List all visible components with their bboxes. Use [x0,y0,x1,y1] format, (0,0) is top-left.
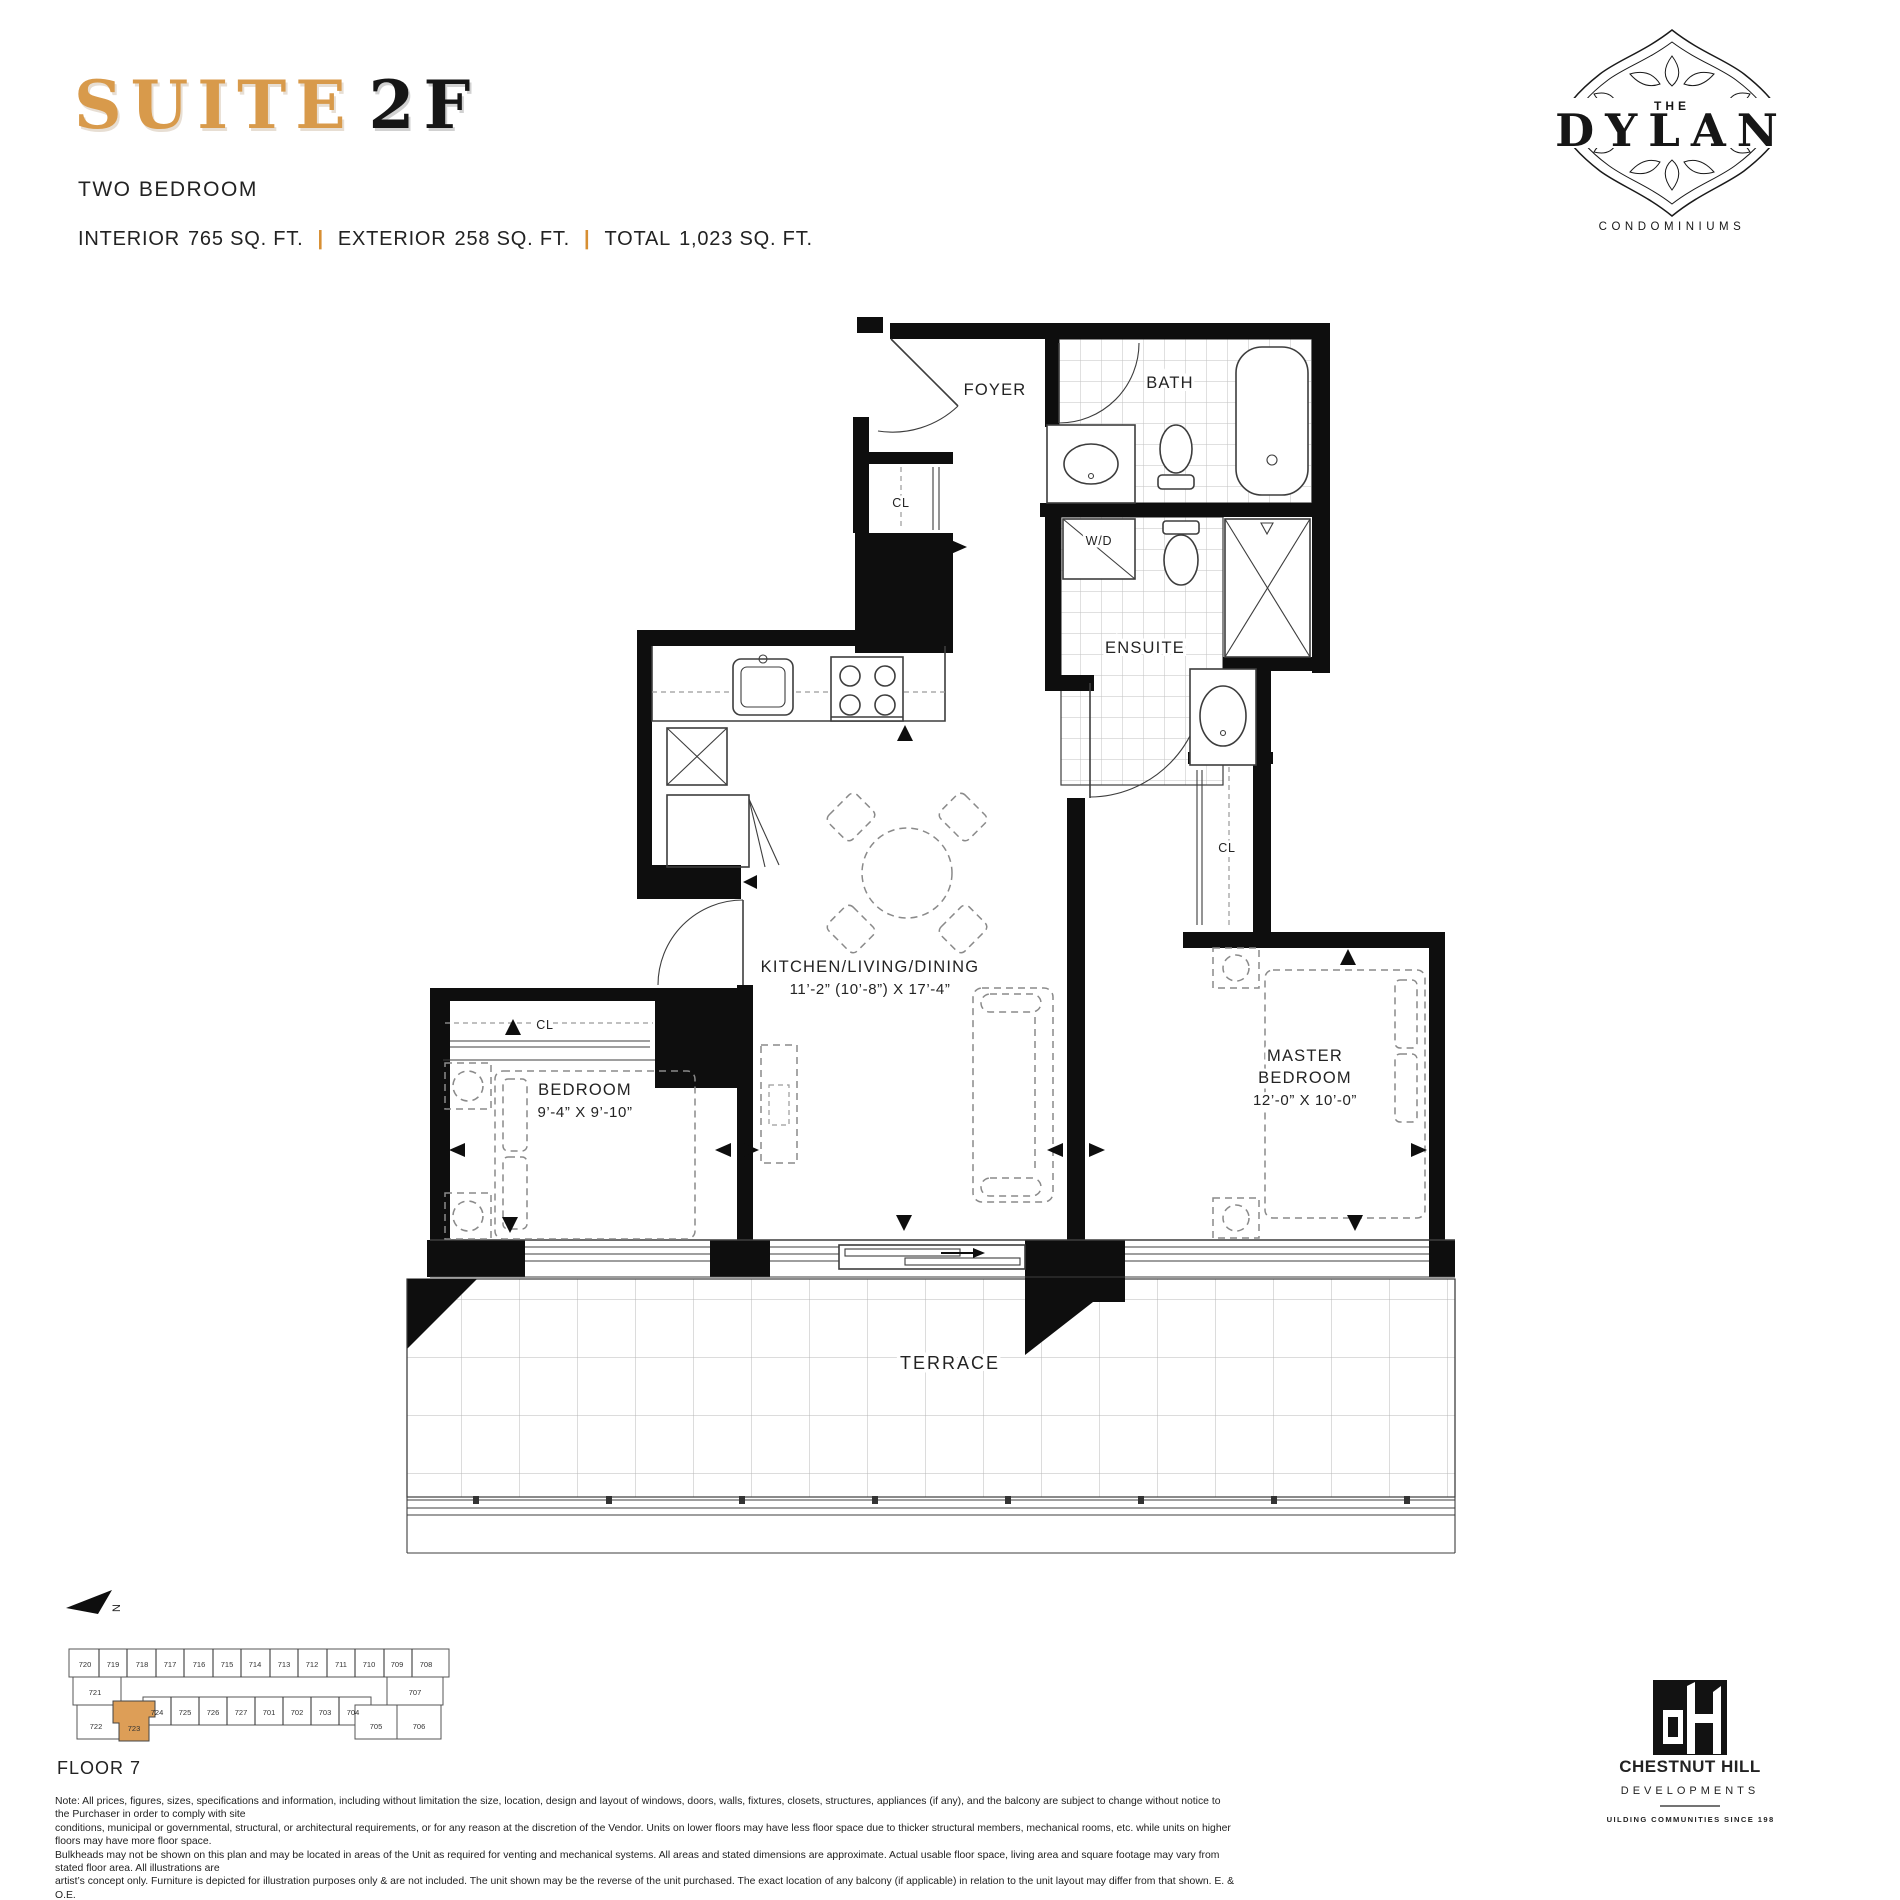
label-master-closet: CL [1218,841,1236,855]
unit-726: 726 [207,1708,220,1717]
suite-type: TWO BEDROOM [78,178,258,202]
unit-720: 720 [79,1660,92,1669]
page-title: SUITE2F [74,72,479,138]
terrace-floor [407,1279,1455,1497]
unit-702: 702 [291,1708,304,1717]
floorplan-page: SUITE2F TWO BEDROOM INTERIOR765 SQ. FT.|… [0,0,1900,1900]
floor-label: FLOOR 7 [57,1758,141,1779]
developer-tagline: BUILDING COMMUNITIES SINCE 1981 [1605,1815,1775,1824]
dims-master: 12’-0” X 10’-0” [1253,1092,1357,1109]
label-bedroom: BEDROOM [538,1081,632,1099]
divider: | [570,228,604,250]
disclaimer-line-3: Bulkheads may not be shown on this plan … [55,1849,1235,1876]
unit-708: 708 [420,1660,433,1669]
unit-725: 725 [179,1708,192,1717]
bath-toilet [1160,425,1192,473]
label-kld: KITCHEN/LIVING/DINING [761,958,980,976]
unit-703: 703 [319,1708,332,1717]
dylan-logo: THE DYLAN CONDOMINIUMS [1522,22,1822,237]
unit-714: 714 [249,1660,262,1669]
brand-descriptor: CONDOMINIUMS [1599,221,1746,233]
dining-table [862,828,952,918]
unit-723: 723 [128,1724,141,1733]
unit-721: 721 [89,1688,102,1697]
key-plan: 720 719 718 717 716 715 714 713 712 711 … [55,1645,465,1760]
unit-704: 704 [347,1708,360,1717]
unit-719: 719 [107,1660,120,1669]
ensuite-sink [1200,686,1246,746]
fridge [667,795,749,867]
developer-name: CHESTNUT HILL [1619,1757,1761,1776]
north-arrow: N [58,1582,148,1630]
north-label: N [111,1604,123,1612]
bathtub [1236,347,1308,495]
interior-label: INTERIOR [78,228,180,250]
unit-727: 727 [235,1708,248,1717]
disclaimer-line-1: Note: All prices, figures, sizes, specif… [55,1795,1235,1822]
windows-layer [430,1240,1455,1277]
chestnut-hill-logo: CHESTNUT HILL DEVELOPMENTS BUILDING COMM… [1605,1672,1775,1842]
developer-division: DEVELOPMENTS [1621,1785,1759,1797]
sliding-door [839,1245,1025,1269]
total-value: 1,023 SQ. FT. [679,228,813,250]
disclaimer-line-4: artist’s concept only. Furniture is depi… [55,1875,1235,1900]
unit-717: 717 [164,1660,177,1669]
suite-code: 2F [369,66,480,144]
unit-724: 724 [151,1708,164,1717]
brand-name: DYLAN [1555,104,1789,157]
suite-word: SUITE [74,66,355,144]
floor-plan: FOYER BATH W/D ENSUITE CL CL CL KITCHEN/… [345,255,1505,1565]
media-console [761,1045,797,1163]
label-foyer-closet: CL [892,496,910,510]
kitchen-fixtures [652,646,945,867]
label-wd: W/D [1086,534,1113,548]
unit-706: 706 [413,1722,426,1731]
label-bedroom-closet: CL [536,1018,554,1032]
unit-711: 711 [335,1660,347,1669]
disclaimer-line-2: conditions, municipal or governmental, s… [55,1822,1235,1849]
unit-712: 712 [306,1660,319,1669]
area-stats: INTERIOR765 SQ. FT.|EXTERIOR258 SQ. FT.|… [78,228,813,251]
label-ensuite: ENSUITE [1105,639,1185,657]
sofa [973,988,1053,1202]
unit-707: 707 [409,1688,422,1697]
label-foyer: FOYER [964,381,1027,399]
dims-kld: 11’-2” (10’-8”) X 17’-4” [790,981,951,998]
unit-705: 705 [370,1722,383,1731]
unit-716: 716 [193,1660,206,1669]
label-bath: BATH [1146,374,1194,392]
unit-710: 710 [363,1660,376,1669]
unit-713: 713 [278,1660,291,1669]
total-label: TOTAL [604,228,671,250]
exterior-label: EXTERIOR [338,228,447,250]
unit-701: 701 [263,1708,276,1717]
divider: | [303,228,337,250]
label-master-1: MASTER [1267,1047,1343,1065]
ensuite-toilet [1164,535,1198,585]
dims-bedroom: 9’-4” X 9’-10” [537,1104,632,1121]
chestnut-hill-monogram [1653,1680,1727,1755]
label-master-2: BEDROOM [1258,1069,1352,1087]
furniture-layer [445,791,1425,1239]
label-terrace: TERRACE [900,1353,1000,1373]
unit-709: 709 [391,1660,404,1669]
highlighted-unit-723 [113,1701,155,1741]
unit-722: 722 [90,1722,103,1731]
unit-718: 718 [136,1660,149,1669]
exterior-value: 258 SQ. FT. [455,228,571,250]
disclaimer: Note: All prices, figures, sizes, specif… [55,1795,1235,1900]
interior-value: 765 SQ. FT. [188,228,304,250]
unit-715: 715 [221,1660,234,1669]
